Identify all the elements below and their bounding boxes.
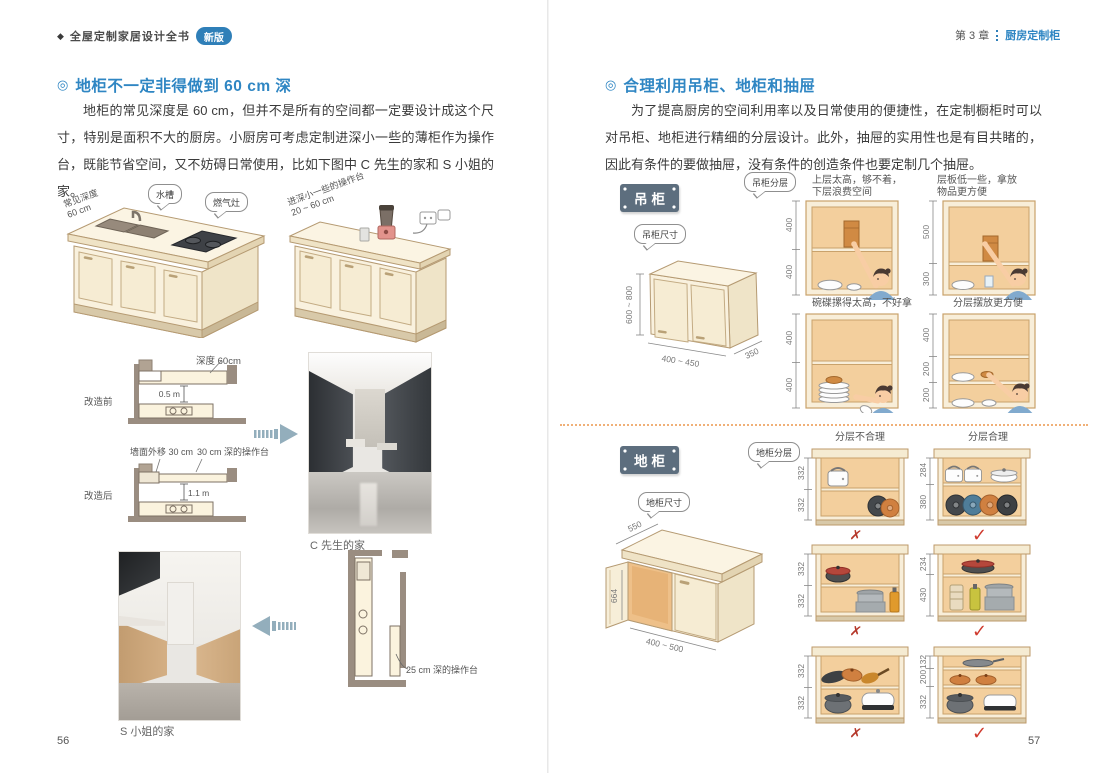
svg-text:350: 350 <box>743 346 760 361</box>
svg-text:332: 332 <box>920 695 928 709</box>
base-bad-row1: 332 332 ✗ <box>798 447 913 543</box>
plan-before-diagram: 0.5 m <box>126 352 251 432</box>
diamond-icon: ◆ <box>57 31 64 42</box>
base-header-good: 分层合理 <box>938 431 1038 444</box>
photo-region <box>119 683 240 720</box>
photo-mr-c-kitchen <box>308 352 432 534</box>
book-title: 全屋定制家居设计全书 <box>70 28 190 44</box>
svg-text:400: 400 <box>786 331 794 345</box>
photo-s-caption: S 小姐的家 <box>120 723 174 739</box>
plan-s-counter-label: 25 cm 深的操作台 <box>406 663 478 676</box>
left-section-title: ◎ 地柜不一定非得做到 60 cm 深 <box>57 74 291 96</box>
stove-bubble: 燃气灶 <box>205 192 248 212</box>
wall-size-bubble: 吊柜尺寸 <box>634 224 686 244</box>
svg-text:0.5 m: 0.5 m <box>159 389 180 399</box>
section-title-text: 地柜不一定非得做到 60 cm 深 <box>75 74 291 96</box>
svg-text:380: 380 <box>920 495 928 509</box>
svg-text:1.1 m: 1.1 m <box>188 488 209 498</box>
header-separator <box>996 30 998 41</box>
svg-text:284: 284 <box>920 463 928 477</box>
section-title-text: 合理利用吊柜、地柜和抽屉 <box>623 74 815 96</box>
svg-text:300: 300 <box>923 272 931 286</box>
chapter-title: 厨房定制柜 <box>1005 27 1060 43</box>
section-marker-icon: ◎ <box>57 77 68 93</box>
svg-text:332: 332 <box>798 594 806 608</box>
svg-text:132: 132 <box>920 655 928 669</box>
cell-caption: 碗碟摞得太高，不好拿 <box>812 297 912 310</box>
base-header-bad: 分层不合理 <box>810 431 910 444</box>
sink-bubble: 水槽 <box>148 184 182 204</box>
edition-badge: 新版 <box>196 27 232 45</box>
wall-comparison-good-low-shelf: 层板低一些，拿放 物品更方便 500 300 <box>923 174 1073 300</box>
svg-text:600 ~ 800: 600 ~ 800 <box>624 286 634 324</box>
svg-text:332: 332 <box>798 664 806 678</box>
svg-text:550: 550 <box>626 519 643 534</box>
svg-text:200: 200 <box>923 362 931 376</box>
svg-text:500: 500 <box>923 225 931 239</box>
thin-cabinet-illustration <box>282 196 487 351</box>
wall-cabinet-size-drawing: 600 ~ 800 400 ~ 450 350 <box>610 248 785 393</box>
svg-text:200: 200 <box>923 388 931 402</box>
plan-after-label: 改造后 <box>84 488 113 502</box>
svg-text:200: 200 <box>920 670 928 684</box>
photo-region <box>355 389 384 447</box>
base-bad-row3: 332 332 ✗ <box>798 645 913 741</box>
arrow-left-icon <box>252 616 296 636</box>
right-page-number: 57 <box>1028 735 1040 747</box>
svg-text:332: 332 <box>798 696 806 710</box>
base-layers-bubble: 地柜分层 <box>748 442 800 462</box>
page-gutter <box>547 0 549 773</box>
svg-text:400: 400 <box>923 328 931 342</box>
base-cabinet-tag: 地柜 <box>620 446 679 474</box>
photo-region <box>360 483 377 526</box>
cell-caption: 分层摆放更方便 <box>953 297 1023 310</box>
svg-text:664: 664 <box>609 589 619 603</box>
base-bad-row2: 332 332 ✗ <box>798 543 913 639</box>
wall-comparison-good-layers: 分层摆放更方便 400 200 200 <box>923 297 1073 423</box>
plan-s-diagram <box>336 548 446 706</box>
right-section-title: ◎ 合理利用吊柜、地柜和抽屉 <box>605 74 815 96</box>
svg-text:400: 400 <box>786 378 794 392</box>
left-running-header: ◆ 全屋定制家居设计全书 新版 <box>57 27 232 45</box>
svg-text:332: 332 <box>798 562 806 576</box>
section-divider <box>560 424 1088 426</box>
good-mark: ✓ <box>972 723 987 744</box>
wall-cabinet-tag: 吊柜 <box>620 184 679 212</box>
left-page-number: 56 <box>57 735 69 747</box>
svg-text:332: 332 <box>798 466 806 480</box>
svg-text:400: 400 <box>786 265 794 279</box>
photo-ms-s-kitchen <box>118 551 241 721</box>
photo-region <box>377 443 397 450</box>
book-spread: ◆ 全屋定制家居设计全书 新版 ◎ 地柜不一定非得做到 60 cm 深 地柜的常… <box>0 0 1096 773</box>
section-marker-icon: ◎ <box>605 77 616 93</box>
svg-text:430: 430 <box>920 588 928 602</box>
good-mark: ✓ <box>972 621 987 642</box>
plan-after-wall-label: 墙面外移 30 cm <box>130 445 193 458</box>
base-cabinet-size-drawing: 550 664 400 ~ 500 <box>602 512 797 652</box>
plan-after-counter-label: 30 cm 深的操作台 <box>197 445 269 458</box>
right-paragraph: 为了提高厨房的空间利用率以及日常使用的便捷性，在定制橱柜时可以对吊柜、地柜进行精… <box>605 97 1042 178</box>
base-good-row3: 132 200 332 ✓ <box>920 645 1035 741</box>
base-good-row2: 234 430 ✓ <box>920 543 1035 639</box>
plan-before-label: 改造前 <box>84 394 113 408</box>
wall-layers-bubble: 吊柜分层 <box>744 172 796 192</box>
base-size-bubble: 地柜尺寸 <box>638 492 690 512</box>
svg-text:400 ~ 450: 400 ~ 450 <box>661 353 700 369</box>
wall-comparison-bad-stacked: 碗碟摞得太高，不好拿 400 400 <box>786 297 921 423</box>
wall-comparison-bad-high: 上层太高，够不着， 下层浪费空间 400 400 <box>786 174 921 300</box>
base-good-row1: 284 380 ✓ <box>920 447 1035 543</box>
svg-text:332: 332 <box>798 498 806 512</box>
arrow-right-icon <box>254 424 298 444</box>
chapter-number: 第 3 章 <box>955 27 989 43</box>
bad-mark: ✗ <box>849 724 864 743</box>
photo-region <box>346 439 366 446</box>
bad-mark: ✗ <box>849 622 864 641</box>
svg-text:400 ~ 500: 400 ~ 500 <box>645 636 685 652</box>
right-running-header: 第 3 章 厨房定制柜 <box>955 27 1060 43</box>
svg-text:400: 400 <box>786 218 794 232</box>
photo-region <box>167 582 193 644</box>
plan-after-diagram: 1.1 m <box>126 458 251 530</box>
svg-text:234: 234 <box>920 557 928 571</box>
